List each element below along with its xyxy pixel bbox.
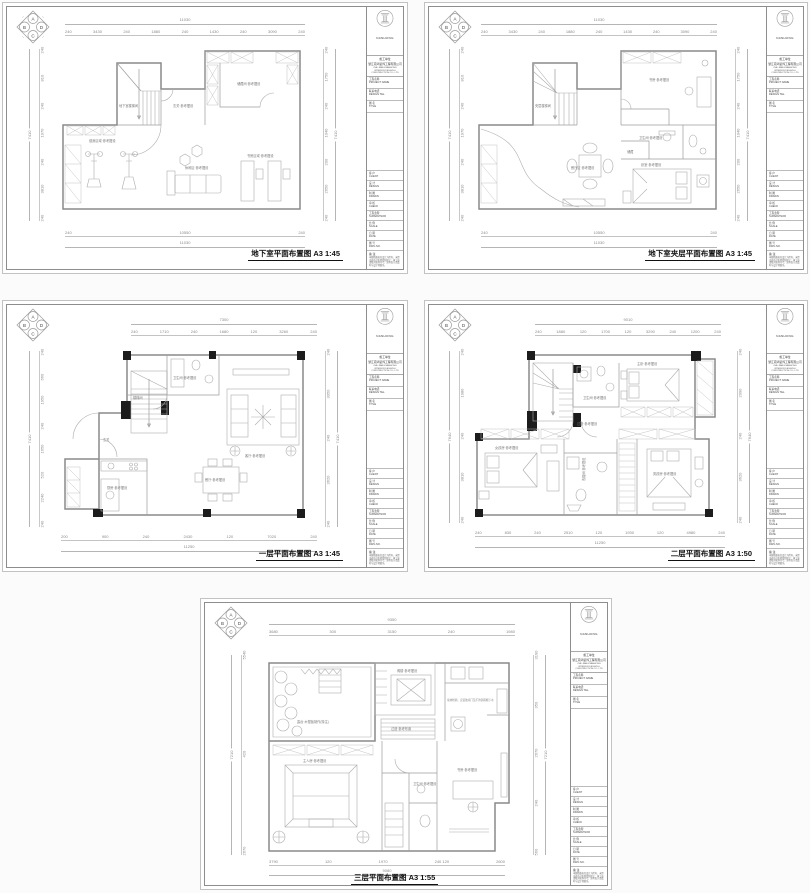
- svg-text:厨房·参考摆设: 厨房·参考摆设: [107, 485, 128, 490]
- company-logo: NANHONG: [571, 603, 607, 652]
- company-block: 施工单位 浙江南鸿装饰工程有限公司 ZHE JIANG NANHONG INTE…: [767, 354, 803, 375]
- svg-text:书房·参考摆设: 书房·参考摆设: [457, 767, 478, 772]
- svg-text:健身区域·参考摆设: 健身区域·参考摆设: [89, 138, 116, 143]
- titleblock-notes: 备 注 本图纸版权归设计方所有，未经书面许可不得复制转让；施工前请核对现场尺寸，…: [767, 549, 803, 567]
- svg-text:楼梯间: 楼梯间: [133, 395, 143, 400]
- compass-icon: A B C D: [15, 9, 51, 45]
- svg-text:A: A: [229, 612, 232, 617]
- title-block: NANHONG 施工单位 浙江南鸿装饰工程有限公司 ZHE JIANG NANH…: [366, 305, 403, 567]
- svg-text:D: D: [238, 621, 242, 626]
- svg-text:B: B: [445, 25, 448, 30]
- svg-text:C: C: [31, 331, 35, 336]
- dim-total-top: 11030: [178, 18, 193, 22]
- title-block: NANHONG 施工单位 浙江南鸿装饰工程有限公司 ZHE JIANG NANH…: [766, 305, 803, 567]
- floor-plan-first: 楼梯间 卫生间·参考摆设 客厅·参考摆设 餐厅·参考摆设 厨房·参考摆设 玄关: [53, 349, 319, 531]
- svg-text:卧室·参考摆设: 卧室·参考摆设: [641, 162, 662, 167]
- svg-text:D: D: [40, 25, 44, 30]
- compass-icon: A B C D: [213, 605, 249, 641]
- svg-text:卫生间·参考摆设: 卫生间·参考摆设: [639, 135, 663, 140]
- compass-icon: A B C D: [15, 307, 51, 343]
- svg-text:主人房·参考摆设: 主人房·参考摆设: [303, 758, 327, 763]
- sheet-title: 三层平面布置图 A3 1:55: [351, 872, 438, 885]
- svg-text:女孩房·参考摆设: 女孩房·参考摆设: [495, 445, 519, 450]
- logo-column-icon: [576, 605, 602, 627]
- floor-plan-mezzanine: 书房·参考摆设 卫生间·参考摆设 储藏 餐厅区·参考摆设 卧室·参考摆设 夹层楼…: [471, 49, 723, 221]
- company-block: 施工单位 浙江南鸿装饰工程有限公司 ZHE JIANG NANHONG INTE…: [767, 56, 803, 77]
- company-block: 施工单位 浙江南鸿装饰工程有限公司 ZHE JIANG NANHONG INTE…: [571, 652, 607, 673]
- svg-text:A: A: [453, 314, 456, 319]
- svg-text:D: D: [40, 323, 44, 328]
- floor-plan-second: 卫生间·参考摆设 主卧·参考摆设 衣帽间·参考摆设 女孩房·参考摆设 过道·参考…: [469, 349, 719, 525]
- svg-text:过道·参考摆设: 过道·参考摆设: [577, 421, 598, 426]
- floor-plan-basement: 地下室楼梯间 玄关·参考摆设 储藏间·参考摆设 健身区域·参考摆设 休闲区·参考…: [55, 49, 317, 221]
- sheet-first-floor: A B C D 7300 240171024016801203260240 74…: [2, 300, 408, 572]
- svg-text:墙体粉刷，安装玻璃门及不锈钢雨棚下水: 墙体粉刷，安装玻璃门及不锈钢雨棚下水: [447, 698, 494, 702]
- svg-text:储藏: 储藏: [627, 149, 634, 154]
- title-block: NANHONG 施工单位 浙江南鸿装饰工程有限公司 ZHE JIANG NANH…: [570, 603, 607, 885]
- svg-text:A: A: [31, 314, 34, 319]
- dim-total-left: 7410: [28, 129, 32, 142]
- title-block: NANHONG 施工单位 浙江南鸿装饰工程有限公司 ZHE JIANG NANH…: [766, 7, 803, 269]
- svg-text:玄关·参考摆设: 玄关·参考摆设: [173, 103, 194, 108]
- svg-text:餐厅区·参考摆设: 餐厅区·参考摆设: [571, 165, 595, 170]
- svg-text:餐厅·参考摆设: 餐厅·参考摆设: [205, 477, 226, 482]
- svg-text:B: B: [23, 323, 26, 328]
- logo-column-icon: [772, 9, 798, 31]
- titleblock-notes: 备 注 本图纸版权归设计方所有，未经书面许可不得复制转让；施工前请核对现场尺寸，…: [367, 251, 403, 269]
- logo-column-icon: [372, 307, 398, 329]
- sheet-title: 地下室夹层平面布置图 A3 1:45: [645, 248, 755, 261]
- sheet-basement-mezzanine: A B C D 11030 24034302401880240143024030…: [424, 2, 808, 274]
- dim-total-bottom: 11030: [178, 241, 193, 245]
- svg-text:D: D: [462, 323, 466, 328]
- titleblock-notes: 备 注 本图纸版权归设计方所有，未经书面许可不得复制转让；施工前请核对现场尺寸，…: [571, 867, 607, 885]
- sheet-third-floor: A B C D 9350 368030031502401980 7210 554…: [200, 598, 612, 890]
- compass-icon: A B C D: [437, 9, 473, 45]
- svg-text:B: B: [23, 25, 26, 30]
- titleblock-rows: 客 户 CLIENT设 计 DESIGN制 图 DRAWN审 核 CHECK工程…: [367, 171, 403, 251]
- titleblock-notes: 备 注 本图纸版权归设计方所有，未经书面许可不得复制转让；施工前请核对现场尺寸，…: [767, 251, 803, 269]
- svg-text:C: C: [453, 33, 457, 38]
- svg-text:夹层楼梯间: 夹层楼梯间: [535, 103, 551, 108]
- svg-text:C: C: [453, 331, 457, 336]
- company-block: 施工单位 浙江南鸿装饰工程有限公司 ZHE JIANG NANHONG INTE…: [367, 56, 403, 77]
- svg-text:书房·参考摆设: 书房·参考摆设: [649, 77, 670, 82]
- sheet-title: 一层平面布置图 A3 1:45: [256, 548, 343, 561]
- titleblock-fields: 工程名称 PROJECT NAME联系电话 DESIGN TEL.图 名 TIT…: [367, 77, 403, 113]
- svg-text:A: A: [453, 16, 456, 21]
- svg-text:A: A: [31, 16, 34, 21]
- svg-text:客厅·参考摆设: 客厅·参考摆设: [245, 453, 266, 458]
- svg-text:主卧·参考摆设: 主卧·参考摆设: [637, 361, 658, 366]
- svg-text:C: C: [229, 629, 233, 634]
- svg-text:休闲区·参考摆设: 休闲区·参考摆设: [185, 165, 209, 170]
- svg-text:储藏间·参考摆设: 储藏间·参考摆设: [237, 81, 261, 86]
- title-block: NANHONG 施工单位 浙江南鸿装饰工程有限公司 ZHE JIANG NANH…: [366, 7, 403, 269]
- logo-column-icon: [772, 307, 798, 329]
- svg-text:玄关: 玄关: [103, 437, 110, 442]
- svg-text:书房区域·参考摆设: 书房区域·参考摆设: [247, 153, 274, 158]
- svg-text:衣帽间·参考摆设: 衣帽间·参考摆设: [581, 457, 586, 481]
- company-logo: NANHONG: [367, 7, 403, 56]
- titleblock-notes: 备 注 本图纸版权归设计方所有，未经书面许可不得复制转让；施工前请核对现场尺寸，…: [367, 549, 403, 567]
- svg-text:男孩房·参考摆设: 男孩房·参考摆设: [653, 471, 677, 476]
- company-logo: NANHONG: [367, 305, 403, 354]
- svg-text:卫生间·参考摆设: 卫生间·参考摆设: [413, 781, 437, 786]
- svg-text:D: D: [462, 25, 466, 30]
- sheet-title: 二层平面布置图 A3 1:50: [668, 548, 755, 561]
- company-block: 施工单位 浙江南鸿装饰工程有限公司 ZHE JIANG NANHONG INTE…: [367, 354, 403, 375]
- dim-segments-bottom: 24010550240: [65, 231, 305, 237]
- company-logo: NANHONG: [767, 7, 803, 56]
- svg-text:B: B: [221, 621, 224, 626]
- sheet-title: 地下室平面布置图 A3 1:45: [248, 248, 343, 261]
- svg-text:地下室楼梯间: 地下室楼梯间: [119, 103, 138, 108]
- dim-segments-top: 2403430240188024014302403090240: [65, 30, 305, 36]
- svg-text:卫生间·参考摆设: 卫生间·参考摆设: [583, 395, 607, 400]
- svg-text:阁楼·参考摆设: 阁楼·参考摆设: [397, 668, 418, 673]
- company-logo: NANHONG: [767, 305, 803, 354]
- sheet-second-floor: A B C D 9010 240188012017001203290240120…: [424, 300, 808, 572]
- svg-text:卫生间·参考摆设: 卫生间·参考摆设: [173, 375, 197, 380]
- floor-plan-third: 露台·木塑板制作(特注) 阁楼·参考摆设 过道·参考布置 主人房·参考摆设 书房…: [257, 653, 529, 855]
- logo-column-icon: [372, 9, 398, 31]
- svg-text:过道·参考布置: 过道·参考布置: [391, 726, 411, 731]
- dim-segments-left: 24081024019702403810240: [39, 49, 45, 221]
- sheet-basement: A B C D 11030 24034302401880240143024030…: [2, 2, 408, 274]
- compass-icon: A B C D: [437, 307, 473, 343]
- svg-text:露台·木塑板制作(特注): 露台·木塑板制作(特注): [297, 719, 329, 724]
- svg-text:C: C: [31, 33, 35, 38]
- dim-total-right: 7410: [334, 129, 338, 142]
- dim-segments-right: 240175024010402002650240: [323, 49, 329, 221]
- svg-text:B: B: [445, 323, 448, 328]
